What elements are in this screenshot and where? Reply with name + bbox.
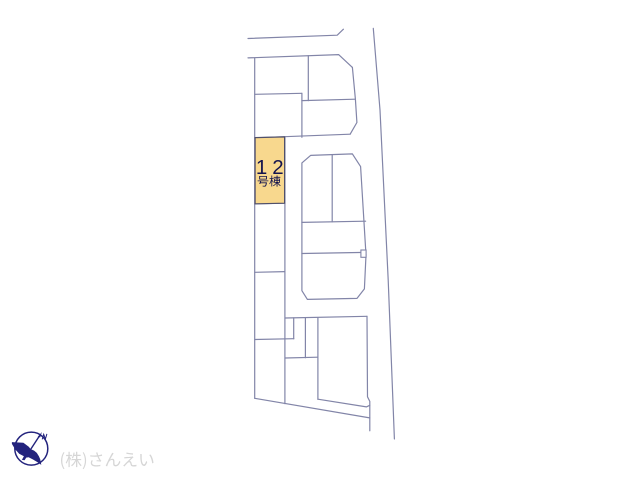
svg-text:12: 12	[256, 156, 289, 179]
